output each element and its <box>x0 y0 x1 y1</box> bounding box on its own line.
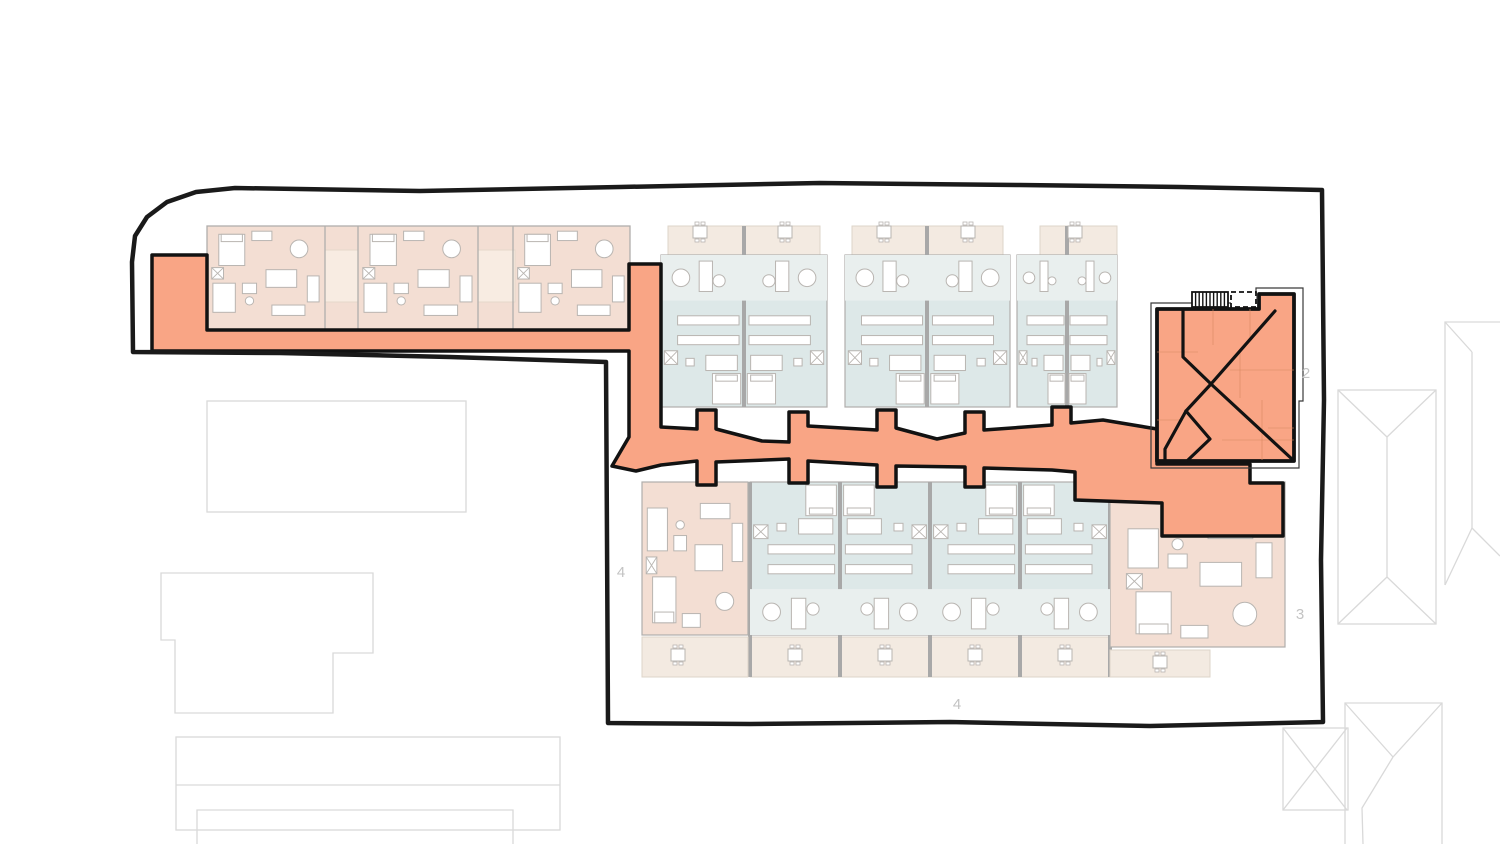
plot-number-label: 3 <box>1296 606 1304 623</box>
furniture-round-table <box>672 269 690 287</box>
lightwell <box>478 250 515 302</box>
plot-number-label: 2 <box>1302 365 1310 382</box>
furniture <box>213 283 235 312</box>
neighbor-roof-outline <box>1345 703 1442 844</box>
furniture <box>870 358 878 366</box>
furniture-round-table <box>946 275 958 287</box>
furniture-round-table <box>1041 603 1053 615</box>
furniture <box>519 283 541 312</box>
furniture-round-table <box>900 603 918 621</box>
terrace-chair <box>1070 239 1074 242</box>
neighbor-roof-line <box>1472 528 1500 556</box>
terrace-table <box>1153 656 1167 668</box>
neighbor-roof-line <box>1393 703 1442 757</box>
furniture <box>971 598 985 629</box>
furniture <box>266 270 297 288</box>
terrace-chair <box>796 645 800 648</box>
furniture <box>847 508 870 514</box>
furniture <box>979 519 1013 534</box>
terrace-chair <box>885 239 889 242</box>
furniture <box>716 375 738 381</box>
furniture <box>874 598 888 629</box>
terrace-chair <box>796 662 800 665</box>
furniture <box>460 276 472 302</box>
furniture-round-table <box>763 275 775 287</box>
furniture <box>1200 562 1242 586</box>
furniture <box>682 614 700 628</box>
building-2 <box>1151 288 1303 468</box>
furniture <box>791 598 805 629</box>
furniture <box>1071 375 1084 381</box>
furniture <box>862 316 923 325</box>
terrace-chair <box>1066 645 1070 648</box>
furniture <box>845 545 912 554</box>
furniture <box>768 545 835 554</box>
furniture <box>1256 543 1272 578</box>
neighbor-roof-outline <box>197 810 513 844</box>
furniture <box>1027 519 1061 534</box>
furniture <box>1027 508 1050 514</box>
furniture-round-table <box>595 240 613 258</box>
furniture <box>847 519 881 534</box>
terrace-table <box>961 226 975 238</box>
furniture <box>989 508 1012 514</box>
furniture <box>1040 261 1048 291</box>
furniture <box>424 305 458 315</box>
furniture <box>1139 624 1168 634</box>
furniture <box>1074 523 1083 531</box>
furniture <box>794 358 802 366</box>
furniture-round-table <box>897 275 909 287</box>
terrace-chair <box>780 222 784 225</box>
terrace-chair <box>701 222 705 225</box>
neighbor-roof-line <box>1387 577 1436 624</box>
neighbor-roof-line <box>1445 322 1472 352</box>
furniture <box>695 545 723 571</box>
terrace-chair <box>786 222 790 225</box>
terrace-chair <box>886 645 890 648</box>
furniture <box>372 234 394 241</box>
terrace-chair <box>790 662 794 665</box>
furniture <box>678 336 739 345</box>
furniture <box>809 508 832 514</box>
plot-number-label: 4 <box>617 564 625 581</box>
terrace-chair <box>963 239 967 242</box>
furniture <box>934 375 955 381</box>
terrace-chair <box>1070 222 1074 225</box>
furniture <box>1027 336 1064 345</box>
neighbor-roof-line <box>1445 528 1472 585</box>
terrace-chair <box>1060 645 1064 648</box>
furniture <box>1027 316 1064 325</box>
furniture <box>1025 565 1092 574</box>
furniture <box>948 545 1015 554</box>
neighbor-roof-outline <box>207 401 466 512</box>
furniture <box>548 283 562 293</box>
furniture <box>577 305 610 315</box>
furniture <box>1097 358 1102 366</box>
furniture-round-table <box>798 269 816 287</box>
furniture-round-table <box>1048 277 1056 285</box>
terrace-chair <box>1076 222 1080 225</box>
furniture <box>706 355 738 370</box>
terrace-chair <box>701 239 705 242</box>
furniture-round-table <box>551 297 559 305</box>
furniture <box>862 336 923 345</box>
terrace-chair <box>969 222 973 225</box>
terrace-chair <box>695 222 699 225</box>
furniture <box>777 523 786 531</box>
terrace-chair <box>780 239 784 242</box>
furniture <box>307 276 319 302</box>
terrace-chair <box>880 645 884 648</box>
terrace-chair <box>976 645 980 648</box>
furniture-round-table <box>807 603 819 615</box>
furniture <box>678 316 739 325</box>
terrace-table <box>877 226 891 238</box>
furniture <box>699 261 712 291</box>
furniture <box>1070 336 1107 345</box>
furniture-round-table <box>716 592 734 610</box>
terrace-chair <box>1076 239 1080 242</box>
furniture <box>1086 261 1094 291</box>
terrace-chair <box>1161 669 1165 672</box>
furniture <box>364 283 387 312</box>
furniture-round-table <box>443 240 461 258</box>
terrace-chair <box>970 645 974 648</box>
furniture <box>686 358 694 366</box>
furniture-round-table <box>1233 602 1257 626</box>
furniture <box>1128 529 1158 568</box>
furniture-round-table <box>943 603 961 621</box>
furniture-round-table <box>1172 539 1183 550</box>
terrace-chair <box>880 662 884 665</box>
neighbor-roof-line <box>1387 390 1436 437</box>
furniture <box>647 508 667 551</box>
furniture <box>894 523 903 531</box>
furniture <box>751 375 773 381</box>
furniture-round-table <box>1078 277 1086 285</box>
furniture-round-table <box>713 275 725 287</box>
building-2-body <box>1157 294 1294 461</box>
furniture <box>242 283 256 293</box>
neighbor-roof-outline <box>161 573 373 713</box>
furniture <box>749 336 810 345</box>
floor-plan-svg: 2344 <box>0 0 1500 844</box>
furniture-round-table <box>1023 272 1035 284</box>
neighbor-roof-outline <box>1362 757 1393 844</box>
furniture <box>890 355 921 370</box>
neighbor-roof-line <box>1338 390 1387 437</box>
terrace-chair <box>673 662 677 665</box>
lightwell <box>325 250 358 302</box>
terrace-chair <box>879 239 883 242</box>
terrace-chair <box>1060 662 1064 665</box>
furniture-round-table <box>987 603 999 615</box>
terrace-table <box>671 649 685 661</box>
terrace-chair <box>969 239 973 242</box>
furniture <box>1054 598 1068 629</box>
terrace-chair <box>963 222 967 225</box>
furniture <box>934 355 965 370</box>
furniture-round-table <box>397 297 405 305</box>
furniture <box>1044 355 1063 370</box>
furniture <box>899 375 920 381</box>
furniture <box>1025 545 1092 554</box>
furniture <box>845 565 912 574</box>
furniture <box>557 231 577 240</box>
terrace-chair <box>885 222 889 225</box>
furniture <box>932 336 993 345</box>
terrace-chair <box>790 645 794 648</box>
furniture <box>252 231 272 240</box>
terrace-chair <box>695 239 699 242</box>
terrace-chair <box>1155 669 1159 672</box>
furniture <box>957 523 966 531</box>
furniture <box>977 358 985 366</box>
furniture-round-table <box>763 603 781 621</box>
terrace-table <box>968 649 982 661</box>
furniture <box>655 612 674 623</box>
furniture <box>749 316 810 325</box>
furniture-round-table <box>245 297 253 305</box>
furniture <box>418 270 449 288</box>
furniture-round-table <box>1099 272 1111 284</box>
furniture <box>1168 554 1187 568</box>
terrace-chair <box>886 662 890 665</box>
furniture <box>527 234 548 241</box>
furniture-round-table <box>861 603 873 615</box>
furniture <box>700 503 730 518</box>
furniture-round-table <box>1080 603 1098 621</box>
furniture <box>932 316 993 325</box>
plot-number-label: 4 <box>953 696 961 713</box>
neighbor-roof-line <box>1345 703 1393 757</box>
furniture-round-table <box>856 269 874 287</box>
furniture <box>732 523 743 561</box>
terrace-table <box>1068 226 1082 238</box>
furniture <box>799 519 833 534</box>
furniture <box>272 305 305 315</box>
furniture <box>1071 355 1090 370</box>
furniture <box>394 283 408 293</box>
furniture-round-table <box>676 521 684 529</box>
dashed-overhead-outline <box>1231 292 1256 307</box>
furniture <box>221 234 242 241</box>
terrace-chair <box>970 662 974 665</box>
terrace-chair <box>976 662 980 665</box>
neighbor-roof-outline <box>176 737 560 830</box>
terrace-table <box>878 649 892 661</box>
terrace-chair <box>1155 652 1159 655</box>
terrace <box>642 637 748 677</box>
furniture <box>1070 316 1107 325</box>
furniture <box>1181 625 1208 638</box>
furniture <box>572 270 602 288</box>
furniture-round-table <box>981 269 999 287</box>
furniture <box>612 276 624 302</box>
furniture <box>404 231 424 240</box>
terrace-chair <box>786 239 790 242</box>
furniture <box>1050 375 1063 381</box>
furniture <box>883 261 896 291</box>
furniture <box>1032 358 1037 366</box>
furniture <box>776 261 789 291</box>
terrace-chair <box>679 662 683 665</box>
furniture <box>751 355 783 370</box>
furniture <box>948 565 1015 574</box>
terrace-table <box>778 226 792 238</box>
terrace-table <box>1058 649 1072 661</box>
terrace-chair <box>1066 662 1070 665</box>
floor-plan-canvas: 2344 <box>0 0 1500 844</box>
terrace-chair <box>1161 652 1165 655</box>
terrace-chair <box>679 645 683 648</box>
neighbor-roof-line <box>1338 577 1387 624</box>
furniture-round-table <box>290 240 308 258</box>
furniture <box>674 536 687 551</box>
terrace-chair <box>673 645 677 648</box>
terrace-table <box>693 226 707 238</box>
terrace-table <box>788 649 802 661</box>
furniture <box>768 565 835 574</box>
furniture <box>959 261 972 291</box>
terrace-chair <box>879 222 883 225</box>
